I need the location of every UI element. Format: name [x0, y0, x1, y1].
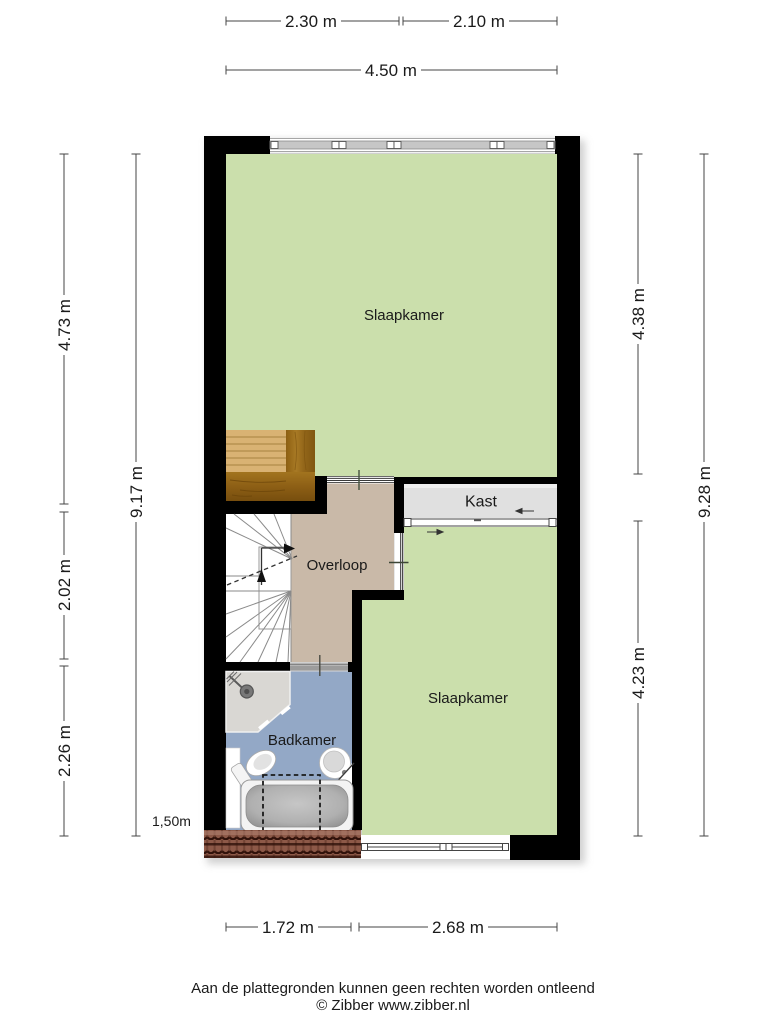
- svg-text:Overloop: Overloop: [307, 557, 368, 574]
- svg-text:9.28 m: 9.28 m: [695, 466, 714, 518]
- svg-text:4.23 m: 4.23 m: [629, 647, 648, 699]
- svg-text:Slaapkamer: Slaapkamer: [428, 690, 508, 707]
- svg-text:Slaapkamer: Slaapkamer: [364, 307, 444, 324]
- svg-text:9.17 m: 9.17 m: [127, 466, 146, 518]
- svg-text:Badkamer: Badkamer: [268, 732, 336, 749]
- svg-text:2.68 m: 2.68 m: [432, 918, 484, 937]
- svg-text:4.73 m: 4.73 m: [55, 299, 74, 351]
- svg-text:2.10 m: 2.10 m: [453, 12, 505, 31]
- svg-text:Kast: Kast: [465, 494, 498, 511]
- svg-text:© Zibber www.zibber.nl: © Zibber www.zibber.nl: [316, 997, 470, 1014]
- svg-text:1.72 m: 1.72 m: [262, 918, 314, 937]
- svg-text:2.30 m: 2.30 m: [285, 12, 337, 31]
- svg-text:Aan de plattegronden kunnen ge: Aan de plattegronden kunnen geen rechten…: [191, 980, 595, 997]
- svg-text:4.50 m: 4.50 m: [365, 61, 417, 80]
- svg-text:2.02 m: 2.02 m: [55, 559, 74, 611]
- svg-text:1,50m: 1,50m: [152, 813, 191, 829]
- svg-text:4.38 m: 4.38 m: [629, 288, 648, 340]
- svg-text:2.26 m: 2.26 m: [55, 725, 74, 777]
